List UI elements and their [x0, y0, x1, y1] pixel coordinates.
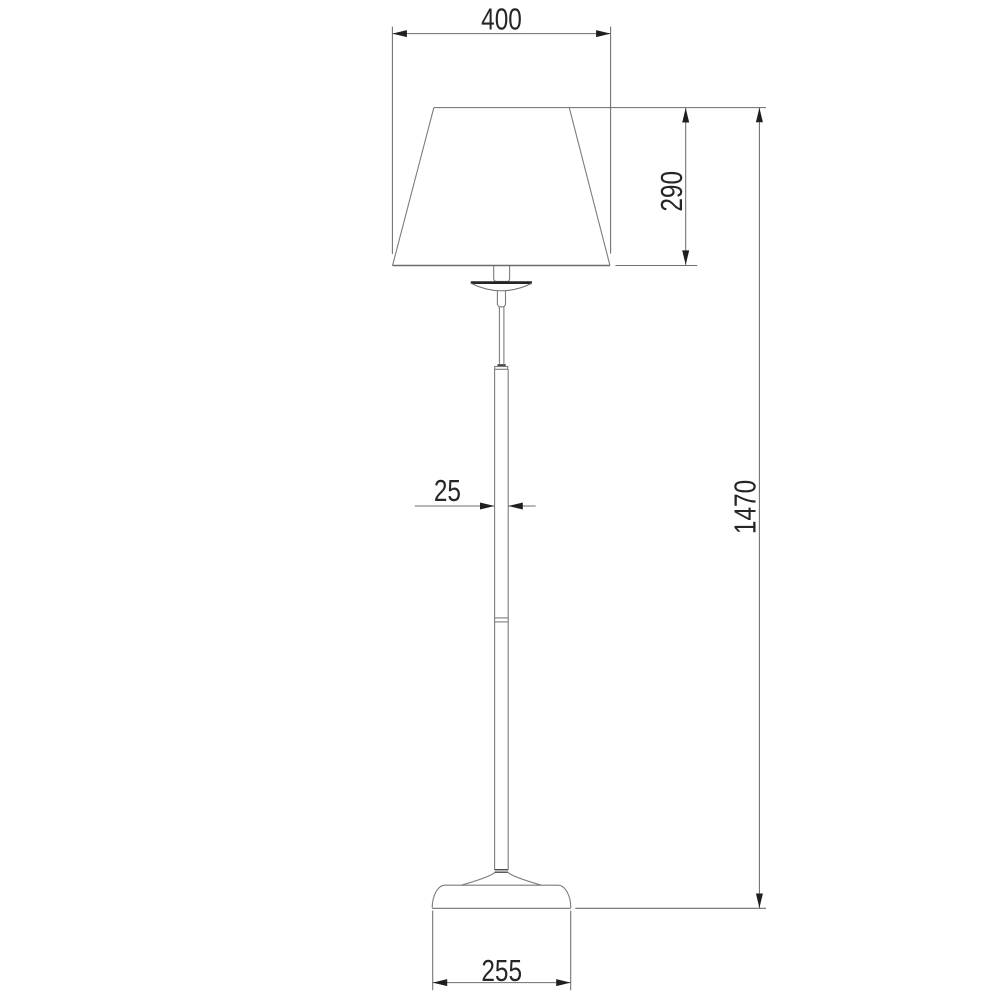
svg-text:290: 290 [654, 171, 688, 212]
svg-text:400: 400 [481, 2, 522, 36]
svg-text:255: 255 [481, 953, 522, 987]
svg-text:25: 25 [434, 473, 461, 507]
svg-text:1470: 1470 [728, 480, 762, 534]
